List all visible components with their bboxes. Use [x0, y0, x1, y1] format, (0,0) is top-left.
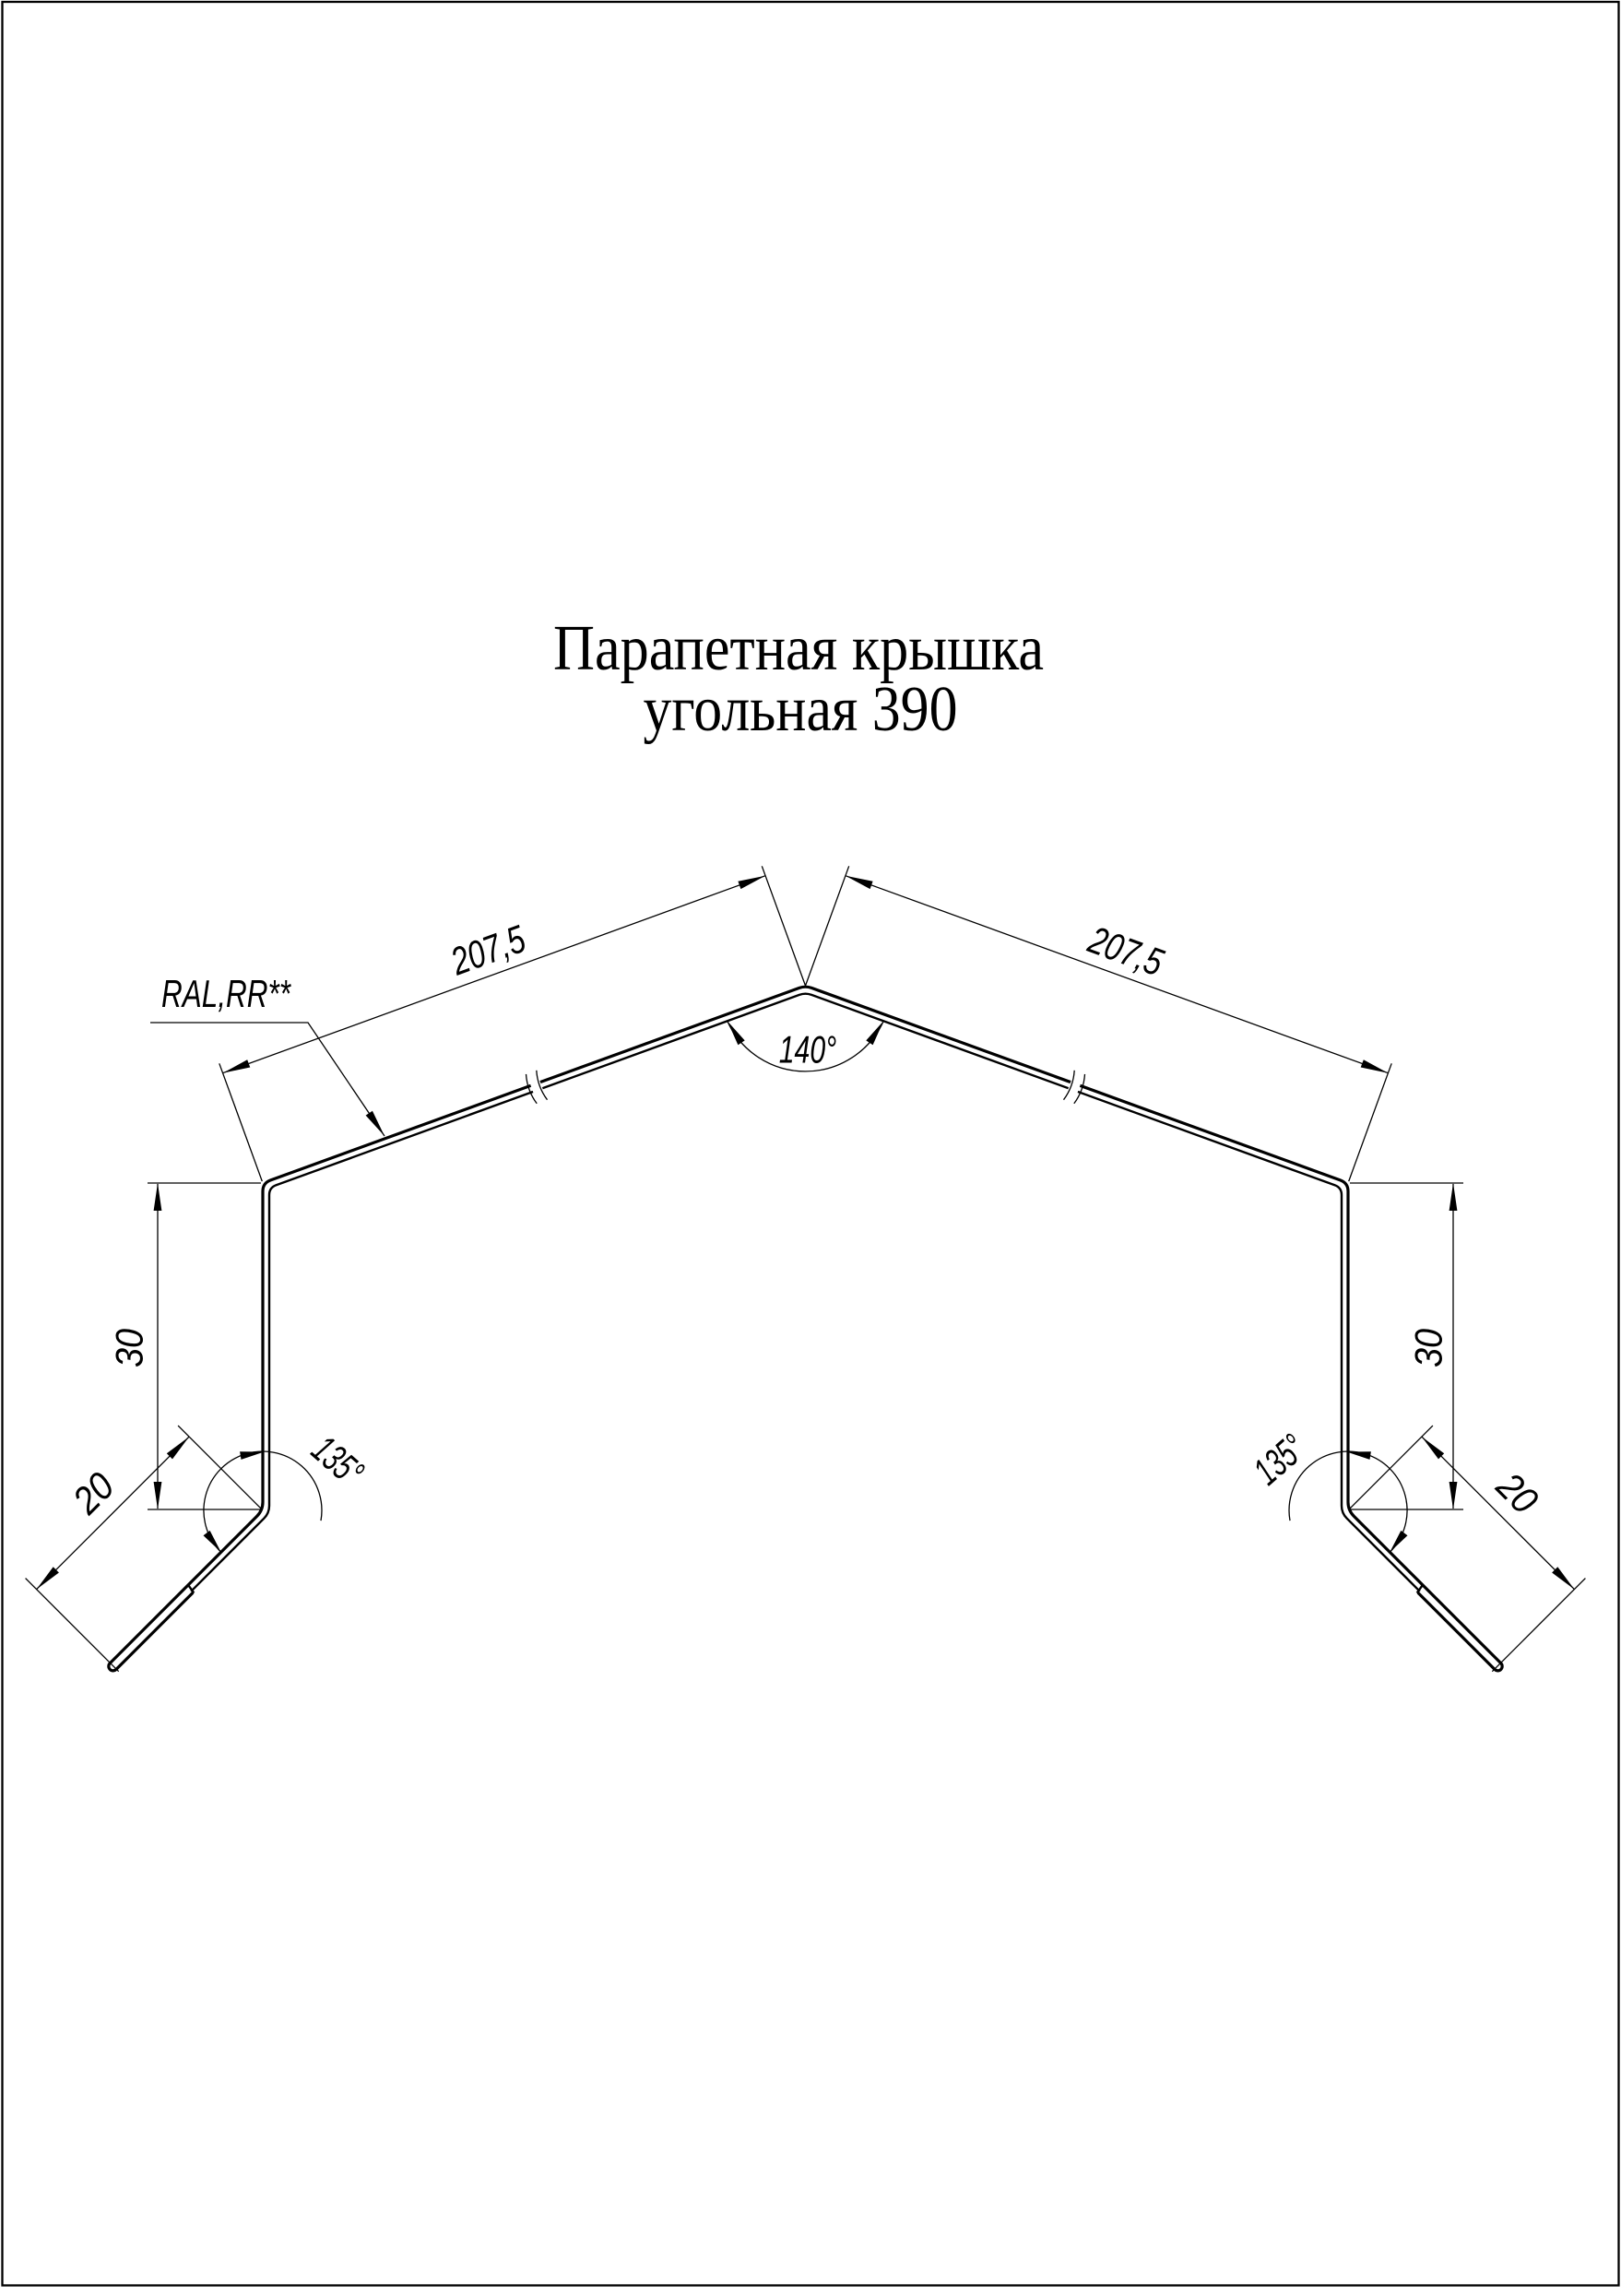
svg-text:угольная 390: угольная 390 — [644, 674, 958, 745]
svg-text:30: 30 — [1408, 1329, 1450, 1367]
svg-text:30: 30 — [109, 1329, 151, 1367]
svg-text:RAL,RR**: RAL,RR** — [161, 972, 291, 1016]
svg-text:140°: 140° — [779, 1027, 837, 1071]
